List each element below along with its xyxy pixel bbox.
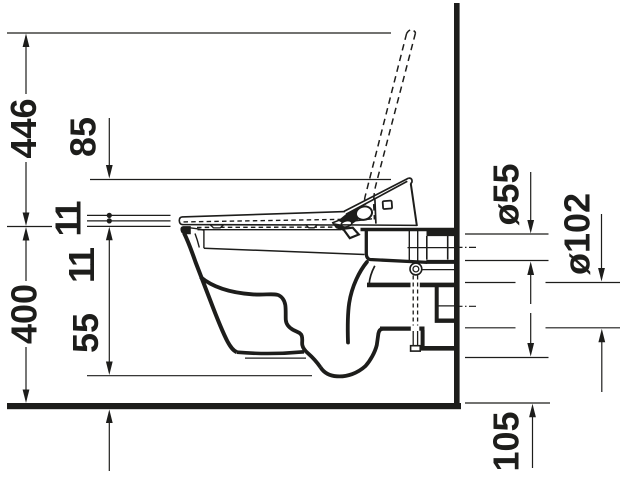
svg-text:ø102: ø102	[557, 193, 598, 275]
svg-text:85: 85	[63, 117, 104, 157]
svg-text:ø55: ø55	[486, 163, 527, 225]
svg-text:55: 55	[65, 313, 106, 353]
svg-text:11: 11	[61, 247, 102, 283]
svg-text:446: 446	[3, 98, 44, 158]
svg-text:11: 11	[48, 200, 89, 236]
svg-text:400: 400	[4, 284, 45, 344]
svg-text:105: 105	[486, 411, 527, 471]
